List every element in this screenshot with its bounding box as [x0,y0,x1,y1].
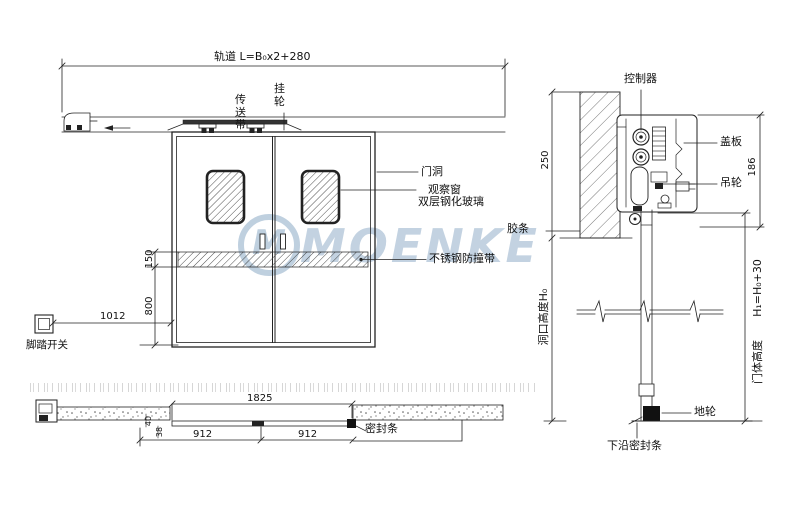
opening-height-label: 洞口高度H₀ [538,289,550,346]
dim-1825: 1825 [247,394,272,405]
floor-wheel-label: 地轮 [694,406,716,418]
hanger-label: 挂轮 [273,83,286,108]
plan-seal-block [347,419,356,428]
window-right [302,171,339,223]
bumper-band [178,252,368,267]
handle-left [260,234,265,249]
hanger-wheel-label: 吊轮 [720,177,742,189]
bottom-seal-label: 下沿密封条 [607,440,662,452]
foot-switch [35,315,53,333]
dim-150: 150 [145,249,156,268]
dim-912-right: 912 [298,430,317,441]
motor-body [631,167,648,205]
dim-186: 186 [748,157,759,176]
floor-wheel [643,406,660,421]
door-height-formula: H₁=H₀+30 [752,259,764,317]
dim-38: 38 [156,427,164,437]
break-line [577,301,723,322]
controller-label: 控制器 [624,73,657,85]
door-slab-section [629,210,752,438]
drawing-linework [0,0,800,510]
dim-250 [549,89,580,241]
dim-250: 250 [541,150,552,169]
bumper-label: 不锈钢防撞带 [429,253,495,265]
door-opening-label: 门洞 [421,166,443,178]
cover-plate-label: 盖板 [720,136,742,148]
seal-strip-label: 密封条 [365,423,398,435]
technical-drawing-sheet: M MOENKE [0,0,800,510]
window-label-line1: 观察窗 [428,184,461,196]
window-left [207,171,244,223]
gear-rack [653,127,666,160]
door-height-label: 门体高度 [752,340,764,384]
mechanism-housing [617,115,697,225]
plan-wall-right [353,405,503,420]
foot-switch-label: 脚踏开关 [26,340,68,351]
belt-label: 传送带 [234,94,247,132]
handle-right [281,234,286,249]
dim-1012: 1012 [100,312,125,323]
dim-912-left: 912 [193,430,212,441]
door-elevation [172,132,426,347]
window-label-line2: 双层钢化玻璃 [418,196,484,208]
rubber-strip-label: 胶条 [507,223,529,235]
dim-40: 40 [145,416,153,426]
plan-view [36,400,503,446]
dim-800: 800 [145,296,156,315]
dim-door-height [658,210,762,424]
track-dim-label: 轨道 L=B₀x2+280 [214,51,311,63]
